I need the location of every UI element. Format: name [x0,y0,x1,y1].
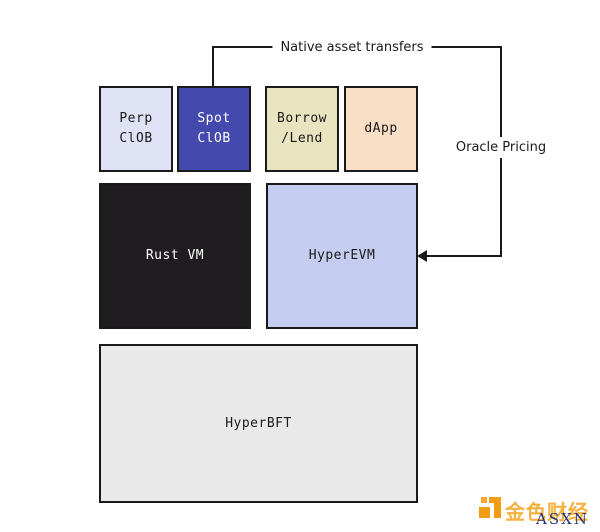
oracle-pricing-label: Oracle Pricing [454,137,548,158]
branding-watermark: 金色财经 ASXN [478,494,598,530]
hyperbft-box: HyperBFT [99,344,418,503]
asxn-brand-text: ASXN [536,510,589,528]
hyperevm-box: HyperEVM [266,183,418,329]
native-asset-transfers-label: Native asset transfers [272,40,431,55]
arrowhead-icon [417,250,427,262]
architecture-diagram: Native asset transfers Oracle Pricing Pe… [0,0,600,532]
connector-line-to-hyperevm [424,255,502,257]
jinse-finance-logo-icon [479,497,501,519]
connector-line-to-spot-clob [212,46,214,87]
perp-clob-box: Perp ClOB [99,86,173,172]
dapp-box: dApp [344,86,418,172]
rust-vm-box: Rust VM [99,183,251,329]
borrow-lend-box: Borrow /Lend [265,86,339,172]
spot-clob-box: Spot ClOB [177,86,251,172]
